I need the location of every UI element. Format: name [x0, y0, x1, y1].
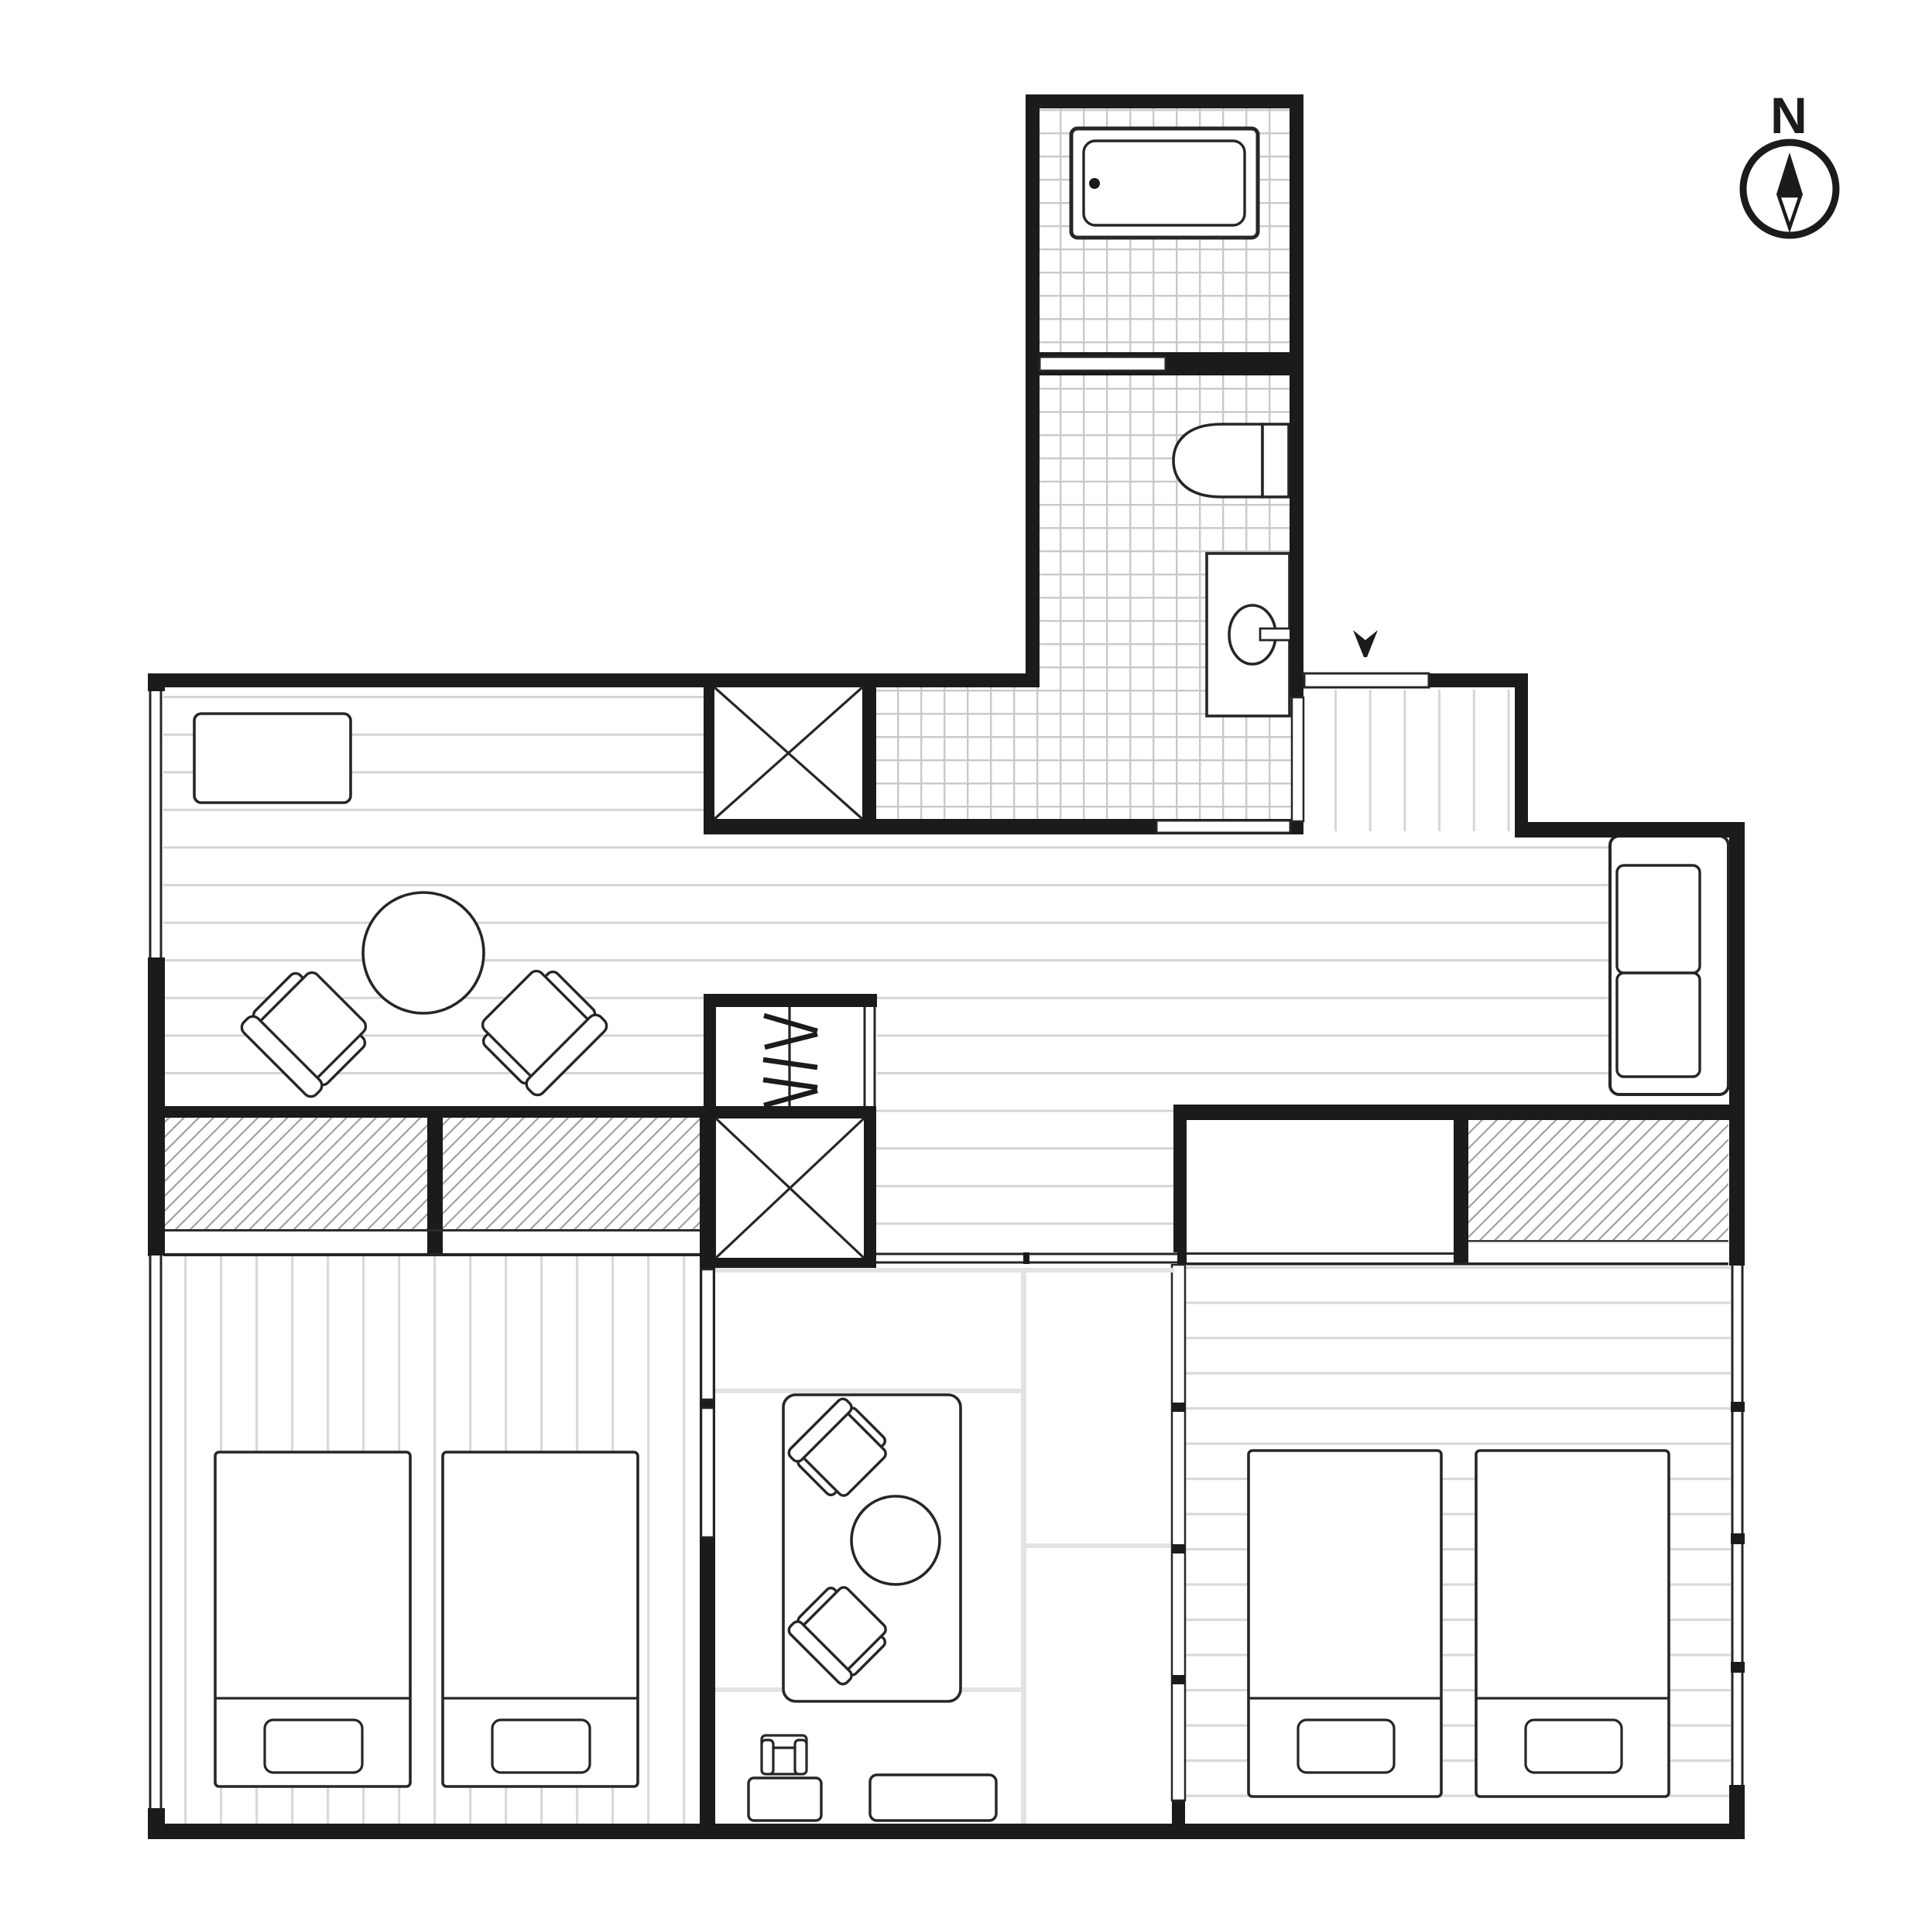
svg-text:N: N: [1770, 87, 1807, 144]
